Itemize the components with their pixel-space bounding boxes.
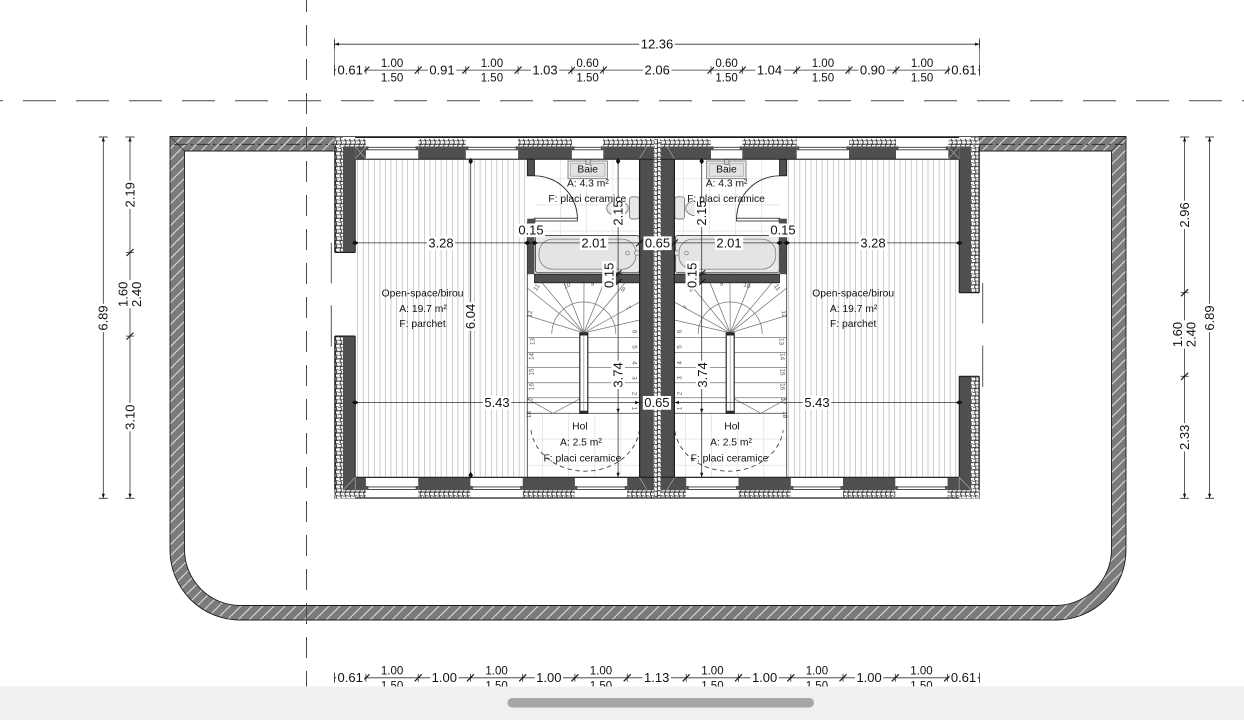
svg-text:0.60: 0.60 — [576, 58, 598, 70]
svg-text:16: 16 — [529, 383, 536, 391]
svg-text:1.00: 1.00 — [536, 670, 561, 685]
svg-text:0.15: 0.15 — [770, 223, 795, 238]
svg-text:6: 6 — [631, 330, 638, 334]
svg-text:0.15: 0.15 — [518, 223, 543, 238]
svg-text:3.28: 3.28 — [428, 236, 453, 251]
svg-text:1.00: 1.00 — [806, 666, 828, 678]
svg-text:1.00: 1.00 — [432, 670, 457, 685]
svg-text:3.74: 3.74 — [695, 362, 710, 387]
svg-text:1.03: 1.03 — [532, 62, 557, 77]
svg-text:F: placi ceramice: F: placi ceramice — [691, 454, 769, 465]
svg-text:F: placi ceramice: F: placi ceramice — [548, 194, 626, 205]
svg-text:2: 2 — [676, 391, 683, 395]
svg-text:3.74: 3.74 — [610, 362, 625, 387]
svg-text:1.50: 1.50 — [481, 72, 503, 84]
svg-text:1.00: 1.00 — [752, 670, 777, 685]
svg-text:0.61: 0.61 — [338, 62, 363, 77]
svg-text:1.50: 1.50 — [576, 72, 598, 84]
svg-text:1.00: 1.00 — [911, 58, 933, 70]
svg-text:4: 4 — [631, 361, 638, 365]
svg-text:1.50: 1.50 — [381, 72, 403, 84]
svg-text:1.50: 1.50 — [911, 72, 933, 84]
svg-text:A: 4.3 m²: A: 4.3 m² — [567, 179, 609, 190]
svg-text:6.89: 6.89 — [96, 305, 111, 330]
svg-text:5.43: 5.43 — [484, 395, 509, 410]
svg-text:1.00: 1.00 — [856, 670, 881, 685]
svg-text:1.00: 1.00 — [590, 666, 612, 678]
svg-text:0.15: 0.15 — [601, 263, 616, 288]
svg-text:0.61: 0.61 — [338, 670, 363, 685]
svg-text:F: parchet: F: parchet — [830, 319, 876, 330]
svg-text:13: 13 — [777, 338, 784, 346]
svg-text:0.60: 0.60 — [715, 58, 737, 70]
svg-text:1.13: 1.13 — [644, 670, 669, 685]
svg-text:4: 4 — [676, 361, 683, 365]
svg-text:13: 13 — [530, 338, 537, 346]
svg-text:3.28: 3.28 — [860, 236, 885, 251]
svg-text:Hol: Hol — [572, 421, 587, 432]
svg-text:0.61: 0.61 — [951, 670, 976, 685]
svg-text:F: parchet: F: parchet — [399, 319, 445, 330]
svg-text:17: 17 — [779, 397, 786, 405]
svg-text:1.04: 1.04 — [757, 62, 782, 77]
svg-text:12.36: 12.36 — [641, 37, 674, 52]
svg-text:A: 2.5 m²: A: 2.5 m² — [560, 438, 602, 449]
svg-text:Open-space/birou: Open-space/birou — [382, 289, 464, 300]
svg-text:15: 15 — [529, 368, 536, 376]
svg-text:3: 3 — [631, 376, 638, 380]
svg-text:1: 1 — [631, 407, 638, 411]
svg-text:2.40: 2.40 — [129, 282, 144, 307]
svg-text:0.91: 0.91 — [429, 62, 454, 77]
svg-text:5: 5 — [631, 345, 638, 349]
svg-text:2.96: 2.96 — [1177, 202, 1192, 227]
svg-text:3: 3 — [676, 376, 683, 380]
svg-text:14: 14 — [529, 353, 536, 361]
svg-text:A: 19.7 m²: A: 19.7 m² — [830, 304, 878, 315]
svg-text:1.00: 1.00 — [381, 58, 403, 70]
svg-text:1: 1 — [676, 406, 683, 410]
svg-text:2.40: 2.40 — [1184, 322, 1199, 347]
svg-text:1.00: 1.00 — [910, 666, 932, 678]
svg-text:15: 15 — [779, 368, 786, 376]
svg-text:0.90: 0.90 — [860, 62, 885, 77]
svg-text:1.00: 1.00 — [481, 58, 503, 70]
svg-text:Baie: Baie — [716, 165, 737, 176]
svg-text:2.33: 2.33 — [1177, 425, 1192, 450]
svg-text:3.10: 3.10 — [122, 405, 137, 430]
svg-text:A: 4.3 m²: A: 4.3 m² — [706, 179, 748, 190]
svg-text:1.00: 1.00 — [381, 666, 403, 678]
svg-text:1.00: 1.00 — [812, 58, 834, 70]
svg-text:17: 17 — [528, 397, 535, 405]
svg-text:5: 5 — [676, 345, 683, 349]
svg-text:2.06: 2.06 — [645, 62, 670, 77]
svg-text:16: 16 — [779, 383, 786, 391]
svg-text:6: 6 — [676, 329, 683, 333]
svg-text:0.65: 0.65 — [644, 395, 669, 410]
svg-text:6.89: 6.89 — [1202, 305, 1217, 330]
svg-text:2: 2 — [631, 392, 638, 396]
svg-text:1.50: 1.50 — [812, 72, 834, 84]
svg-text:2.01: 2.01 — [716, 236, 741, 251]
svg-text:14: 14 — [779, 353, 786, 361]
svg-text:0.61: 0.61 — [951, 62, 976, 77]
svg-text:A: 2.5 m²: A: 2.5 m² — [710, 438, 752, 449]
svg-text:F: placi ceramice: F: placi ceramice — [687, 194, 765, 205]
svg-text:Open-space/birou: Open-space/birou — [812, 289, 894, 300]
svg-text:0.65: 0.65 — [645, 236, 670, 251]
svg-text:F: placi ceramice: F: placi ceramice — [543, 454, 621, 465]
svg-text:5.43: 5.43 — [804, 395, 829, 410]
svg-text:1.50: 1.50 — [715, 72, 737, 84]
svg-text:A: 19.7 m²: A: 19.7 m² — [399, 304, 447, 315]
svg-text:0.15: 0.15 — [685, 263, 700, 288]
svg-text:1.00: 1.00 — [701, 666, 723, 678]
svg-text:2.19: 2.19 — [122, 182, 137, 207]
svg-text:Baie: Baie — [577, 165, 598, 176]
svg-text:1.00: 1.00 — [485, 666, 507, 678]
svg-text:6.04: 6.04 — [463, 304, 478, 329]
svg-text:Hol: Hol — [724, 421, 739, 432]
svg-text:2.01: 2.01 — [581, 236, 606, 251]
